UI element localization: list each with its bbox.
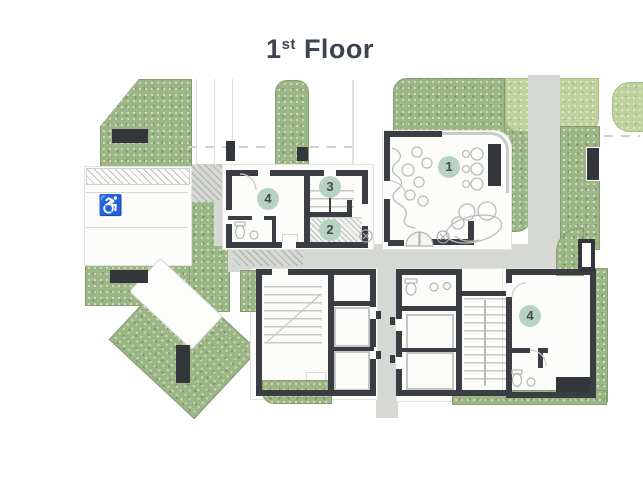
bathroom-fixtures <box>235 222 535 387</box>
unit-marker-4-lower: 4 <box>519 305 541 327</box>
unit-marker-4-upper: 4 <box>257 188 279 210</box>
floor-plan-canvas: 1st Floor ♿ <box>0 0 643 478</box>
plan-linework <box>0 0 643 478</box>
unit-marker-3: 3 <box>319 176 341 198</box>
entrance-double-door <box>406 232 433 246</box>
unit-marker-2: 2 <box>319 219 341 241</box>
door-swing-arcs <box>240 174 546 366</box>
plant-icons <box>360 230 449 243</box>
unit-marker-1: 1 <box>438 156 460 178</box>
